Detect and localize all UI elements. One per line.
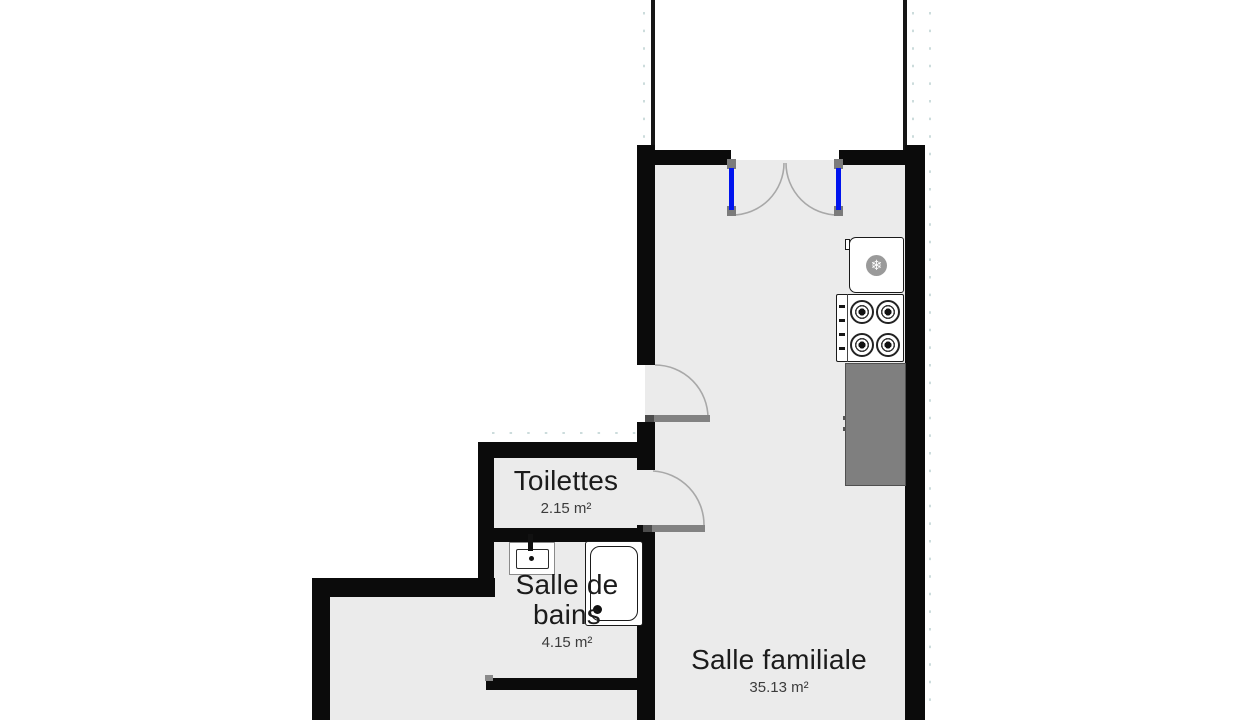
room-name: Salle de bains: [487, 570, 647, 630]
door-leaf-toilettes[interactable]: [643, 525, 705, 532]
sink-drain: [529, 556, 534, 561]
room-area: 2.15 m²: [476, 500, 656, 517]
room-name: Toilettes: [476, 466, 656, 496]
floor-plan-canvas: ❄ Toilettes 2.15 m² Salle de bains 4.15 …: [0, 0, 1240, 720]
burner-icon: [876, 300, 900, 324]
wall: [637, 145, 655, 365]
stove-knob: [839, 305, 845, 308]
wall: [651, 0, 655, 150]
floor-bottom-room: [320, 590, 495, 720]
wall-cap: [485, 675, 493, 681]
door-leaf-upper[interactable]: [645, 415, 710, 422]
stove-knob: [839, 319, 845, 322]
wall: [478, 442, 655, 458]
counter-mark: [843, 427, 846, 431]
wall: [903, 0, 907, 150]
door-hinge: [645, 415, 654, 422]
burner-icon: [850, 300, 874, 324]
door-hinge: [643, 525, 652, 532]
snowflake-icon: ❄: [866, 255, 887, 276]
wall: [312, 578, 495, 597]
room-area: 35.13 m²: [669, 679, 889, 696]
room-area: 4.15 m²: [487, 634, 647, 651]
wall: [312, 578, 330, 720]
room-label-toilettes[interactable]: Toilettes 2.15 m²: [476, 466, 656, 517]
burner-icon: [876, 333, 900, 357]
french-door-right-panel[interactable]: [836, 168, 841, 210]
room-label-salle-familiale[interactable]: Salle familiale 35.13 m²: [669, 645, 889, 696]
kitchen-counter[interactable]: [845, 363, 906, 486]
room-name: Salle familiale: [669, 645, 889, 675]
counter-mark: [843, 416, 846, 420]
wall: [478, 528, 655, 542]
burner-icon: [850, 333, 874, 357]
refrigerator-handle: [845, 239, 850, 250]
faucet-icon: [528, 534, 533, 551]
wall: [905, 145, 925, 720]
stove-knob: [839, 333, 845, 336]
room-label-salle-de-bains[interactable]: Salle de bains 4.15 m²: [487, 570, 647, 651]
wall: [486, 678, 653, 690]
stove-knob: [839, 347, 845, 350]
french-door-left-panel[interactable]: [729, 168, 734, 210]
